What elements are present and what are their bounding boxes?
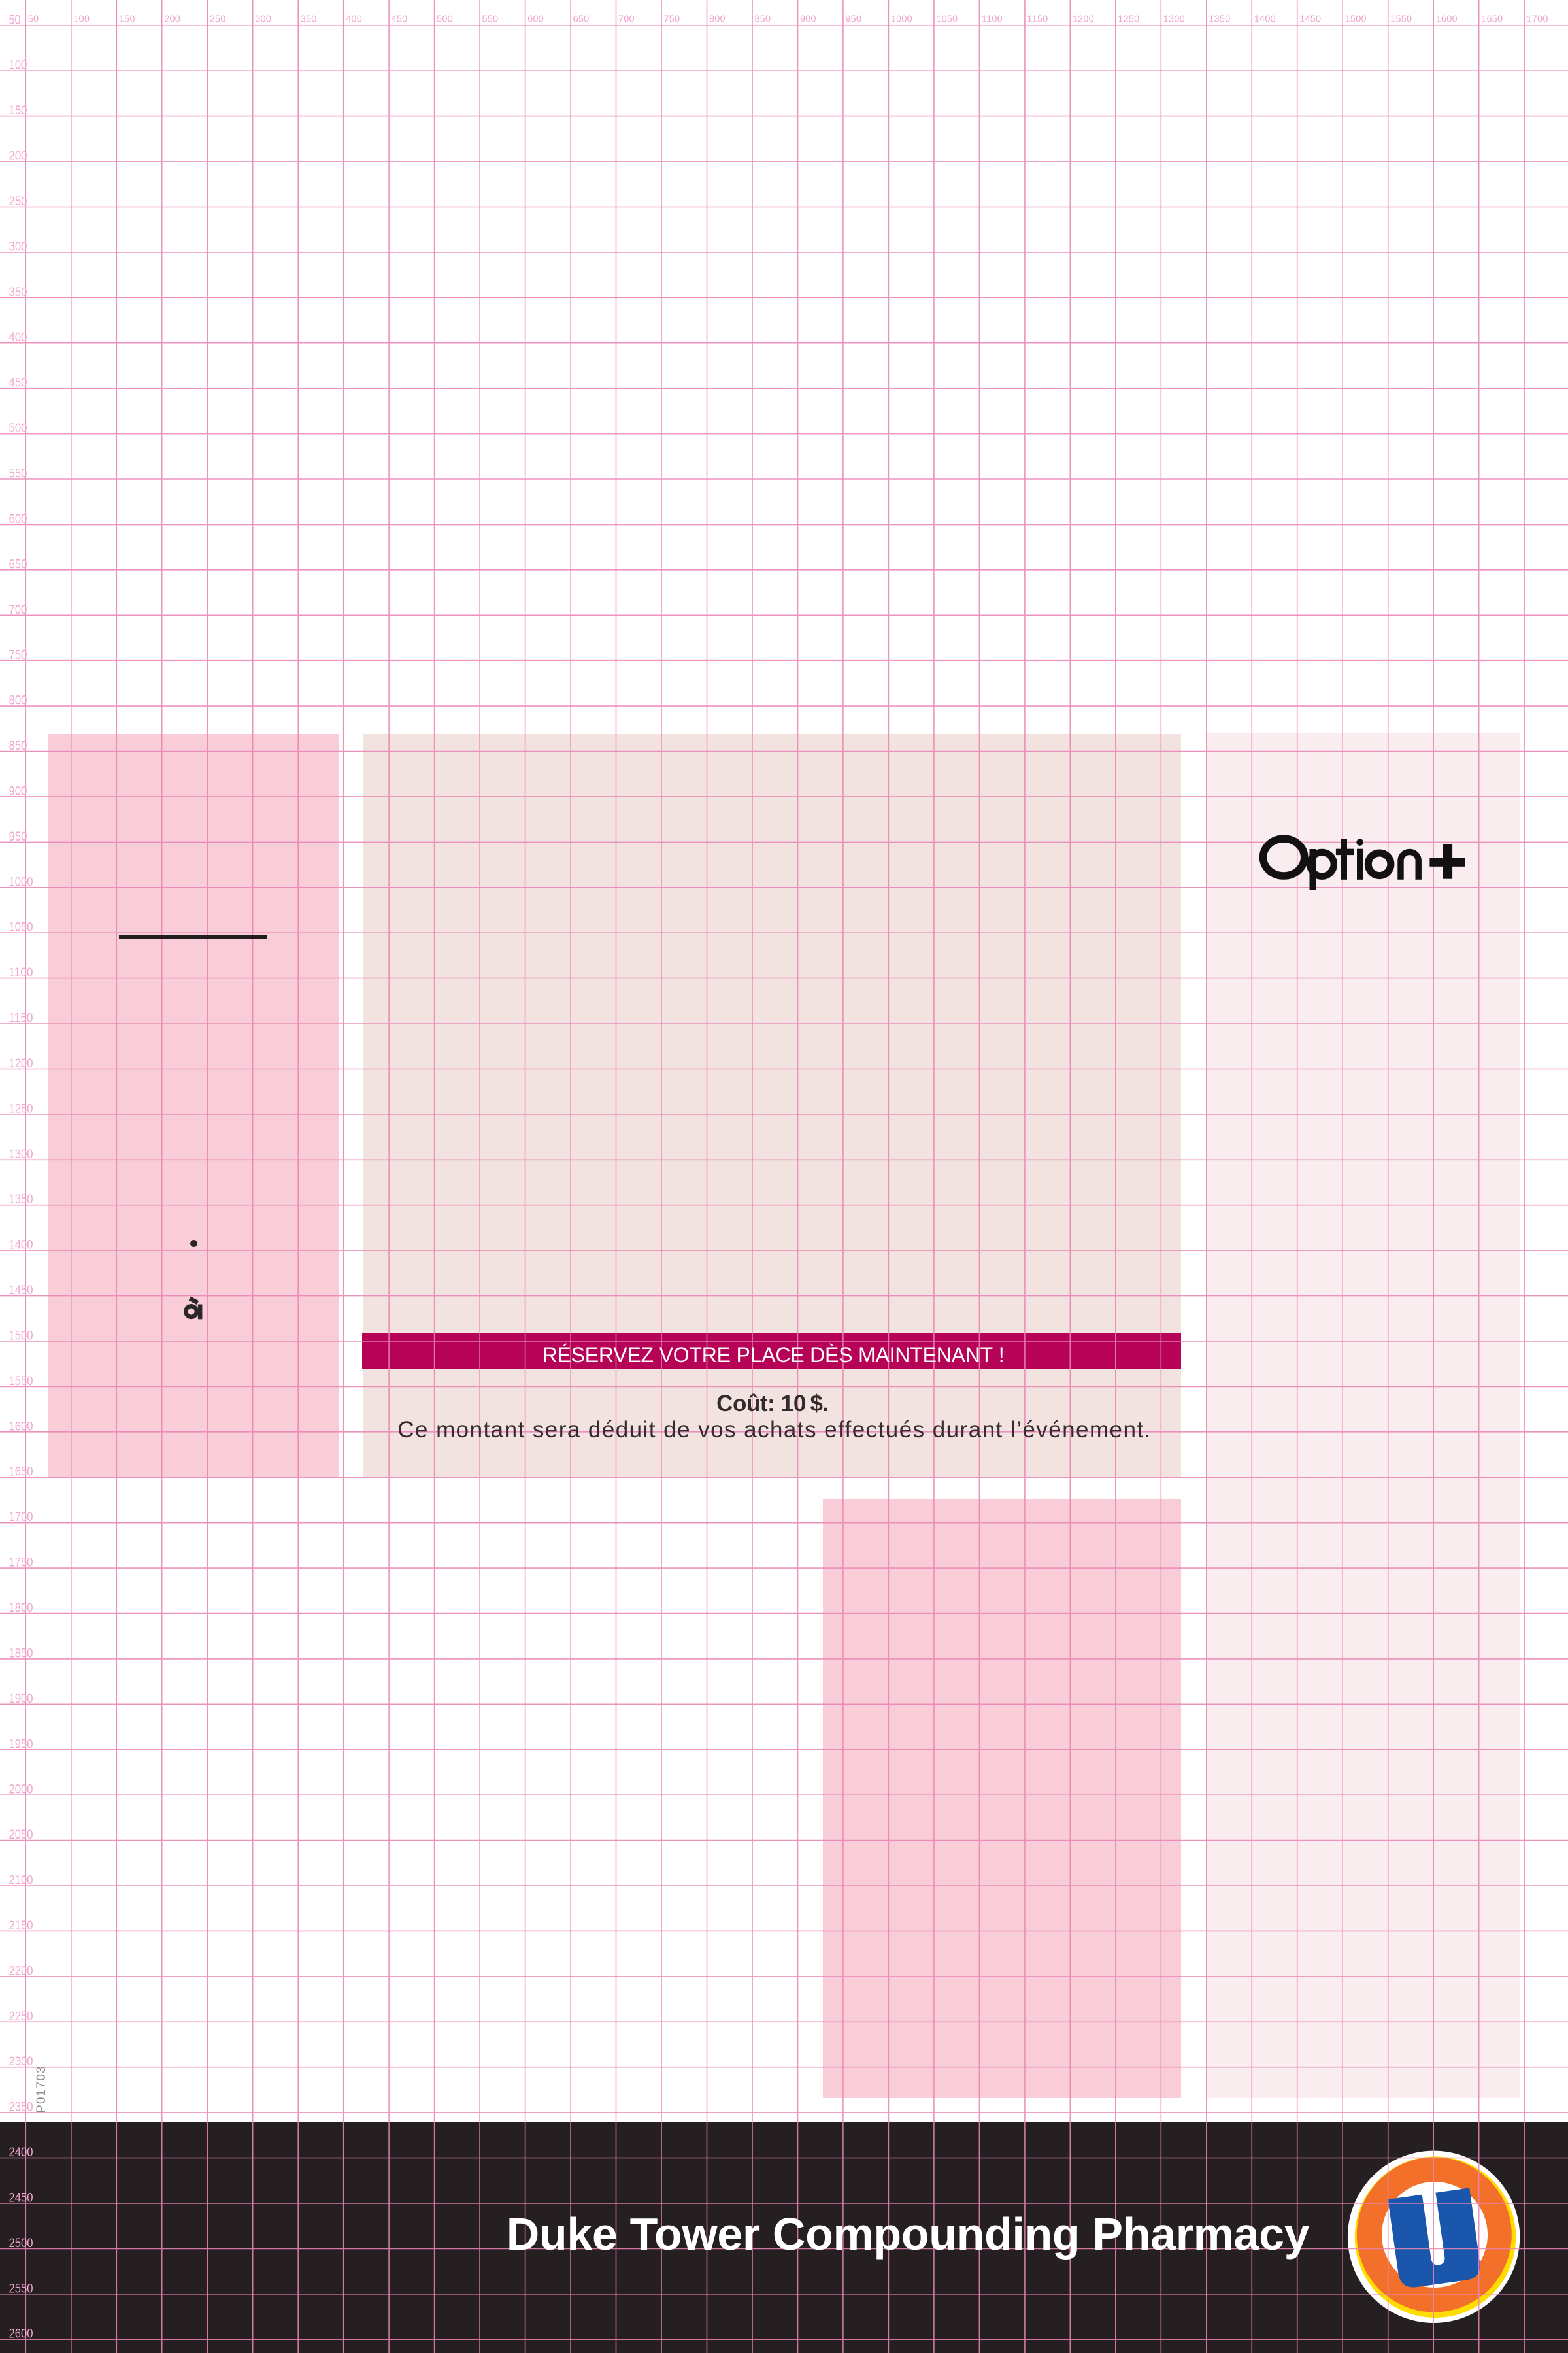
svg-text:1400: 1400 <box>1254 14 1276 25</box>
svg-text:50: 50 <box>9 12 21 27</box>
svg-text:1750: 1750 <box>9 1556 33 1570</box>
svg-text:1350: 1350 <box>1209 14 1230 25</box>
svg-text:600: 600 <box>527 14 544 25</box>
svg-text:600: 600 <box>9 512 27 526</box>
svg-text:1300: 1300 <box>1163 14 1185 25</box>
svg-text:200: 200 <box>9 149 27 163</box>
svg-text:2350: 2350 <box>9 2100 33 2114</box>
svg-text:300: 300 <box>255 14 271 25</box>
svg-text:1100: 1100 <box>982 14 1003 25</box>
svg-text:1150: 1150 <box>1027 14 1048 25</box>
svg-text:1800: 1800 <box>9 1601 33 1615</box>
svg-text:1350: 1350 <box>9 1192 33 1207</box>
svg-text:650: 650 <box>573 14 590 25</box>
svg-text:2450: 2450 <box>9 2191 33 2205</box>
svg-text:1000: 1000 <box>891 14 912 25</box>
svg-text:2000: 2000 <box>9 1782 33 1797</box>
svg-text:1200: 1200 <box>9 1056 33 1071</box>
svg-text:50: 50 <box>28 14 39 25</box>
svg-text:1650: 1650 <box>9 1465 33 1479</box>
svg-text:1600: 1600 <box>9 1419 33 1433</box>
svg-text:2500: 2500 <box>9 2236 33 2250</box>
svg-text:250: 250 <box>210 14 226 25</box>
svg-text:1200: 1200 <box>1073 14 1094 25</box>
svg-text:200: 200 <box>164 14 180 25</box>
svg-text:1050: 1050 <box>936 14 958 25</box>
svg-text:500: 500 <box>437 14 453 25</box>
svg-text:750: 750 <box>9 648 27 662</box>
svg-text:2150: 2150 <box>9 1918 33 1933</box>
svg-text:900: 900 <box>800 14 816 25</box>
svg-text:550: 550 <box>9 467 27 481</box>
svg-text:1500: 1500 <box>1345 14 1367 25</box>
svg-text:750: 750 <box>664 14 680 25</box>
svg-text:350: 350 <box>9 285 27 299</box>
svg-text:2100: 2100 <box>9 1873 33 1888</box>
svg-text:1250: 1250 <box>1118 14 1139 25</box>
svg-text:1450: 1450 <box>9 1283 33 1297</box>
svg-text:950: 950 <box>845 14 861 25</box>
svg-text:2600: 2600 <box>9 2327 33 2341</box>
svg-text:450: 450 <box>9 376 27 390</box>
svg-text:1950: 1950 <box>9 1737 33 1751</box>
svg-text:1300: 1300 <box>9 1147 33 1161</box>
svg-text:1450: 1450 <box>1299 14 1321 25</box>
svg-text:1250: 1250 <box>9 1101 33 1116</box>
svg-text:1150: 1150 <box>9 1011 33 1026</box>
svg-text:2050: 2050 <box>9 1827 33 1842</box>
svg-text:700: 700 <box>9 603 27 617</box>
svg-text:2200: 2200 <box>9 1963 33 1978</box>
svg-text:650: 650 <box>9 557 27 571</box>
svg-text:1000: 1000 <box>9 875 33 889</box>
svg-text:300: 300 <box>9 239 27 254</box>
svg-text:1100: 1100 <box>9 965 33 980</box>
svg-text:1900: 1900 <box>9 1692 33 1706</box>
svg-text:100: 100 <box>73 14 90 25</box>
svg-text:850: 850 <box>755 14 771 25</box>
svg-text:150: 150 <box>119 14 135 25</box>
svg-text:150: 150 <box>9 103 27 118</box>
svg-text:2300: 2300 <box>9 2054 33 2069</box>
svg-text:500: 500 <box>9 421 27 435</box>
svg-text:1550: 1550 <box>1390 14 1412 25</box>
svg-text:1650: 1650 <box>1481 14 1503 25</box>
svg-text:1700: 1700 <box>1527 14 1548 25</box>
svg-text:400: 400 <box>346 14 362 25</box>
svg-text:100: 100 <box>9 58 27 73</box>
svg-text:400: 400 <box>9 330 27 344</box>
svg-text:950: 950 <box>9 829 27 844</box>
svg-text:1850: 1850 <box>9 1646 33 1660</box>
svg-text:1400: 1400 <box>9 1238 33 1252</box>
svg-text:800: 800 <box>9 693 27 708</box>
svg-text:250: 250 <box>9 194 27 209</box>
svg-text:900: 900 <box>9 784 27 798</box>
svg-text:550: 550 <box>482 14 499 25</box>
svg-text:2550: 2550 <box>9 2281 33 2295</box>
svg-text:850: 850 <box>9 739 27 753</box>
svg-text:1600: 1600 <box>1436 14 1458 25</box>
svg-text:450: 450 <box>392 14 408 25</box>
svg-text:1550: 1550 <box>9 1374 33 1388</box>
svg-text:1500: 1500 <box>9 1329 33 1343</box>
svg-text:2250: 2250 <box>9 2009 33 2024</box>
svg-text:2400: 2400 <box>9 2145 33 2160</box>
svg-text:800: 800 <box>709 14 726 25</box>
svg-text:350: 350 <box>301 14 317 25</box>
svg-text:1050: 1050 <box>9 920 33 935</box>
svg-text:700: 700 <box>618 14 635 25</box>
svg-text:1700: 1700 <box>9 1510 33 1524</box>
